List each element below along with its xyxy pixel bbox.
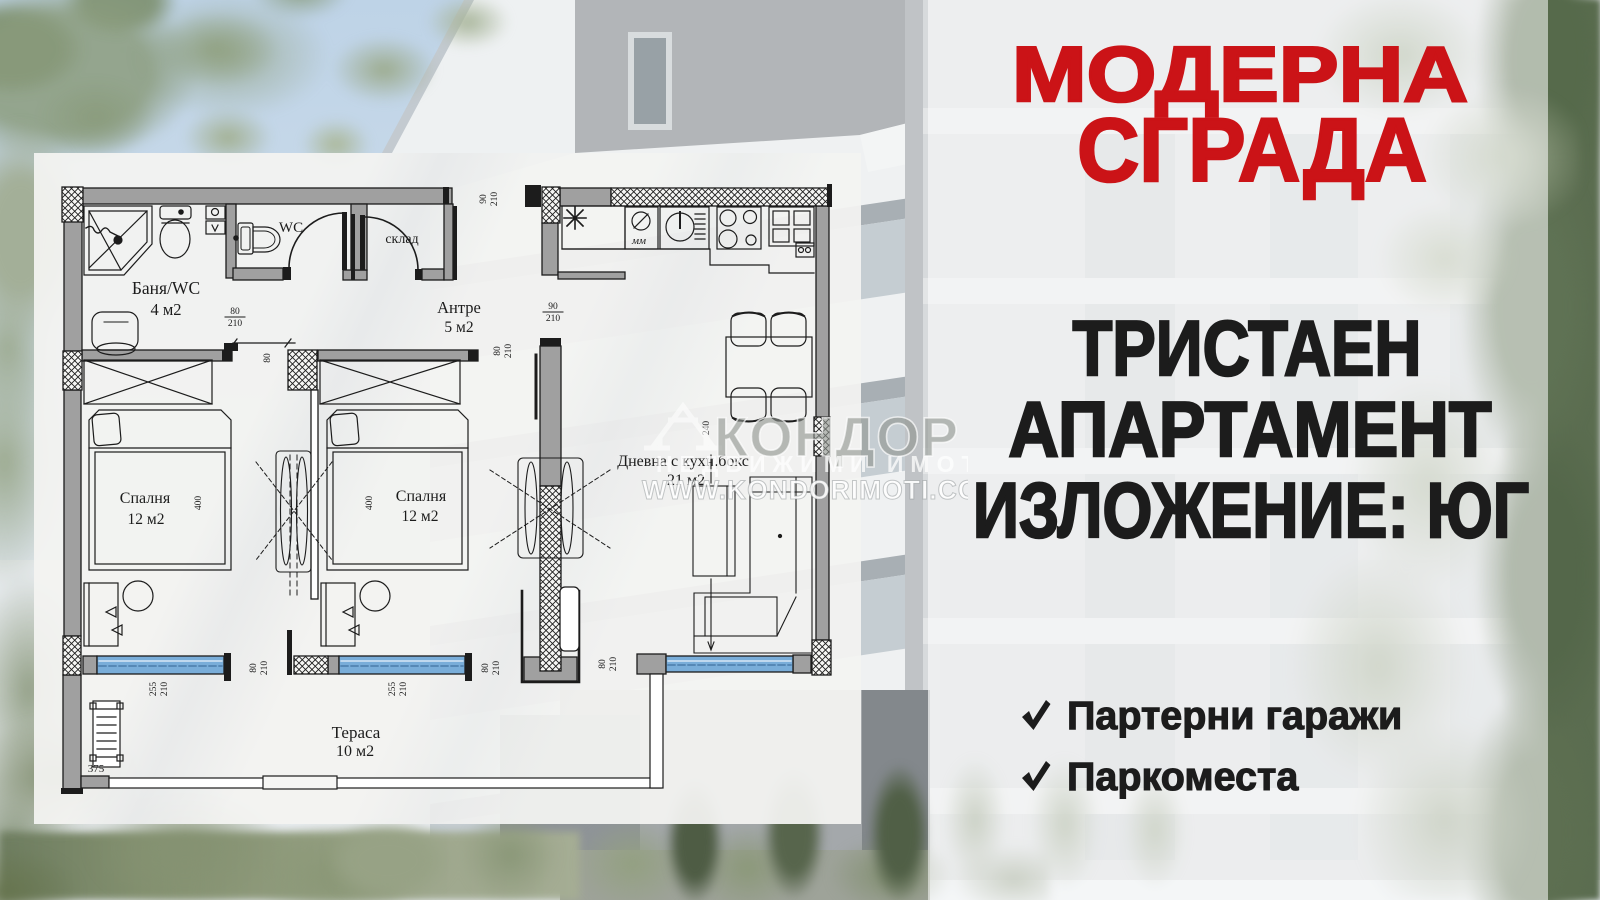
svg-text:210: 210 <box>228 319 243 329</box>
svg-text:210: 210 <box>490 192 500 207</box>
svg-text:12 м2: 12 м2 <box>402 508 439 525</box>
svg-text:10 м2: 10 м2 <box>336 743 374 760</box>
svg-text:375: 375 <box>88 763 105 775</box>
svg-text:80: 80 <box>230 307 240 317</box>
svg-text:Антре: Антре <box>437 298 481 317</box>
svg-text:Спалня: Спалня <box>120 490 171 507</box>
svg-text:210: 210 <box>160 682 170 697</box>
svg-text:80: 80 <box>481 663 491 673</box>
svg-text:210: 210 <box>492 661 502 676</box>
svg-text:склад: склад <box>385 232 418 247</box>
svg-text:400: 400 <box>365 496 375 511</box>
svg-text:Тераса: Тераса <box>332 723 381 742</box>
svg-text:12 м2: 12 м2 <box>128 511 165 528</box>
svg-text:90: 90 <box>479 194 489 204</box>
svg-text:210: 210 <box>504 344 514 359</box>
svg-text:210: 210 <box>609 657 619 672</box>
svg-text:Спалня: Спалня <box>396 488 447 505</box>
svg-text:4 м2: 4 м2 <box>150 300 181 319</box>
svg-text:80: 80 <box>263 353 273 363</box>
svg-text:мм: мм <box>631 235 646 247</box>
svg-text:255: 255 <box>149 682 159 697</box>
svg-text:400: 400 <box>194 496 204 511</box>
svg-text:WC: WC <box>279 220 303 236</box>
svg-text:255: 255 <box>388 682 398 697</box>
svg-text:90: 90 <box>548 302 558 312</box>
svg-text:80: 80 <box>598 659 608 669</box>
svg-text:5 м2: 5 м2 <box>444 319 473 336</box>
svg-text:210: 210 <box>399 682 409 697</box>
svg-text:210: 210 <box>546 314 561 324</box>
svg-text:210: 210 <box>260 661 270 676</box>
svg-text:80: 80 <box>493 346 503 356</box>
svg-text:WWW.KONDORIMOTI.COM: WWW.KONDORIMOTI.COM <box>642 475 968 505</box>
svg-text:80: 80 <box>249 663 259 673</box>
svg-text:НЕДВИЖИМИ ИМОТИ: НЕДВИЖИМИ ИМОТИ <box>656 451 968 477</box>
svg-text:Баня/WC: Баня/WC <box>132 278 200 298</box>
